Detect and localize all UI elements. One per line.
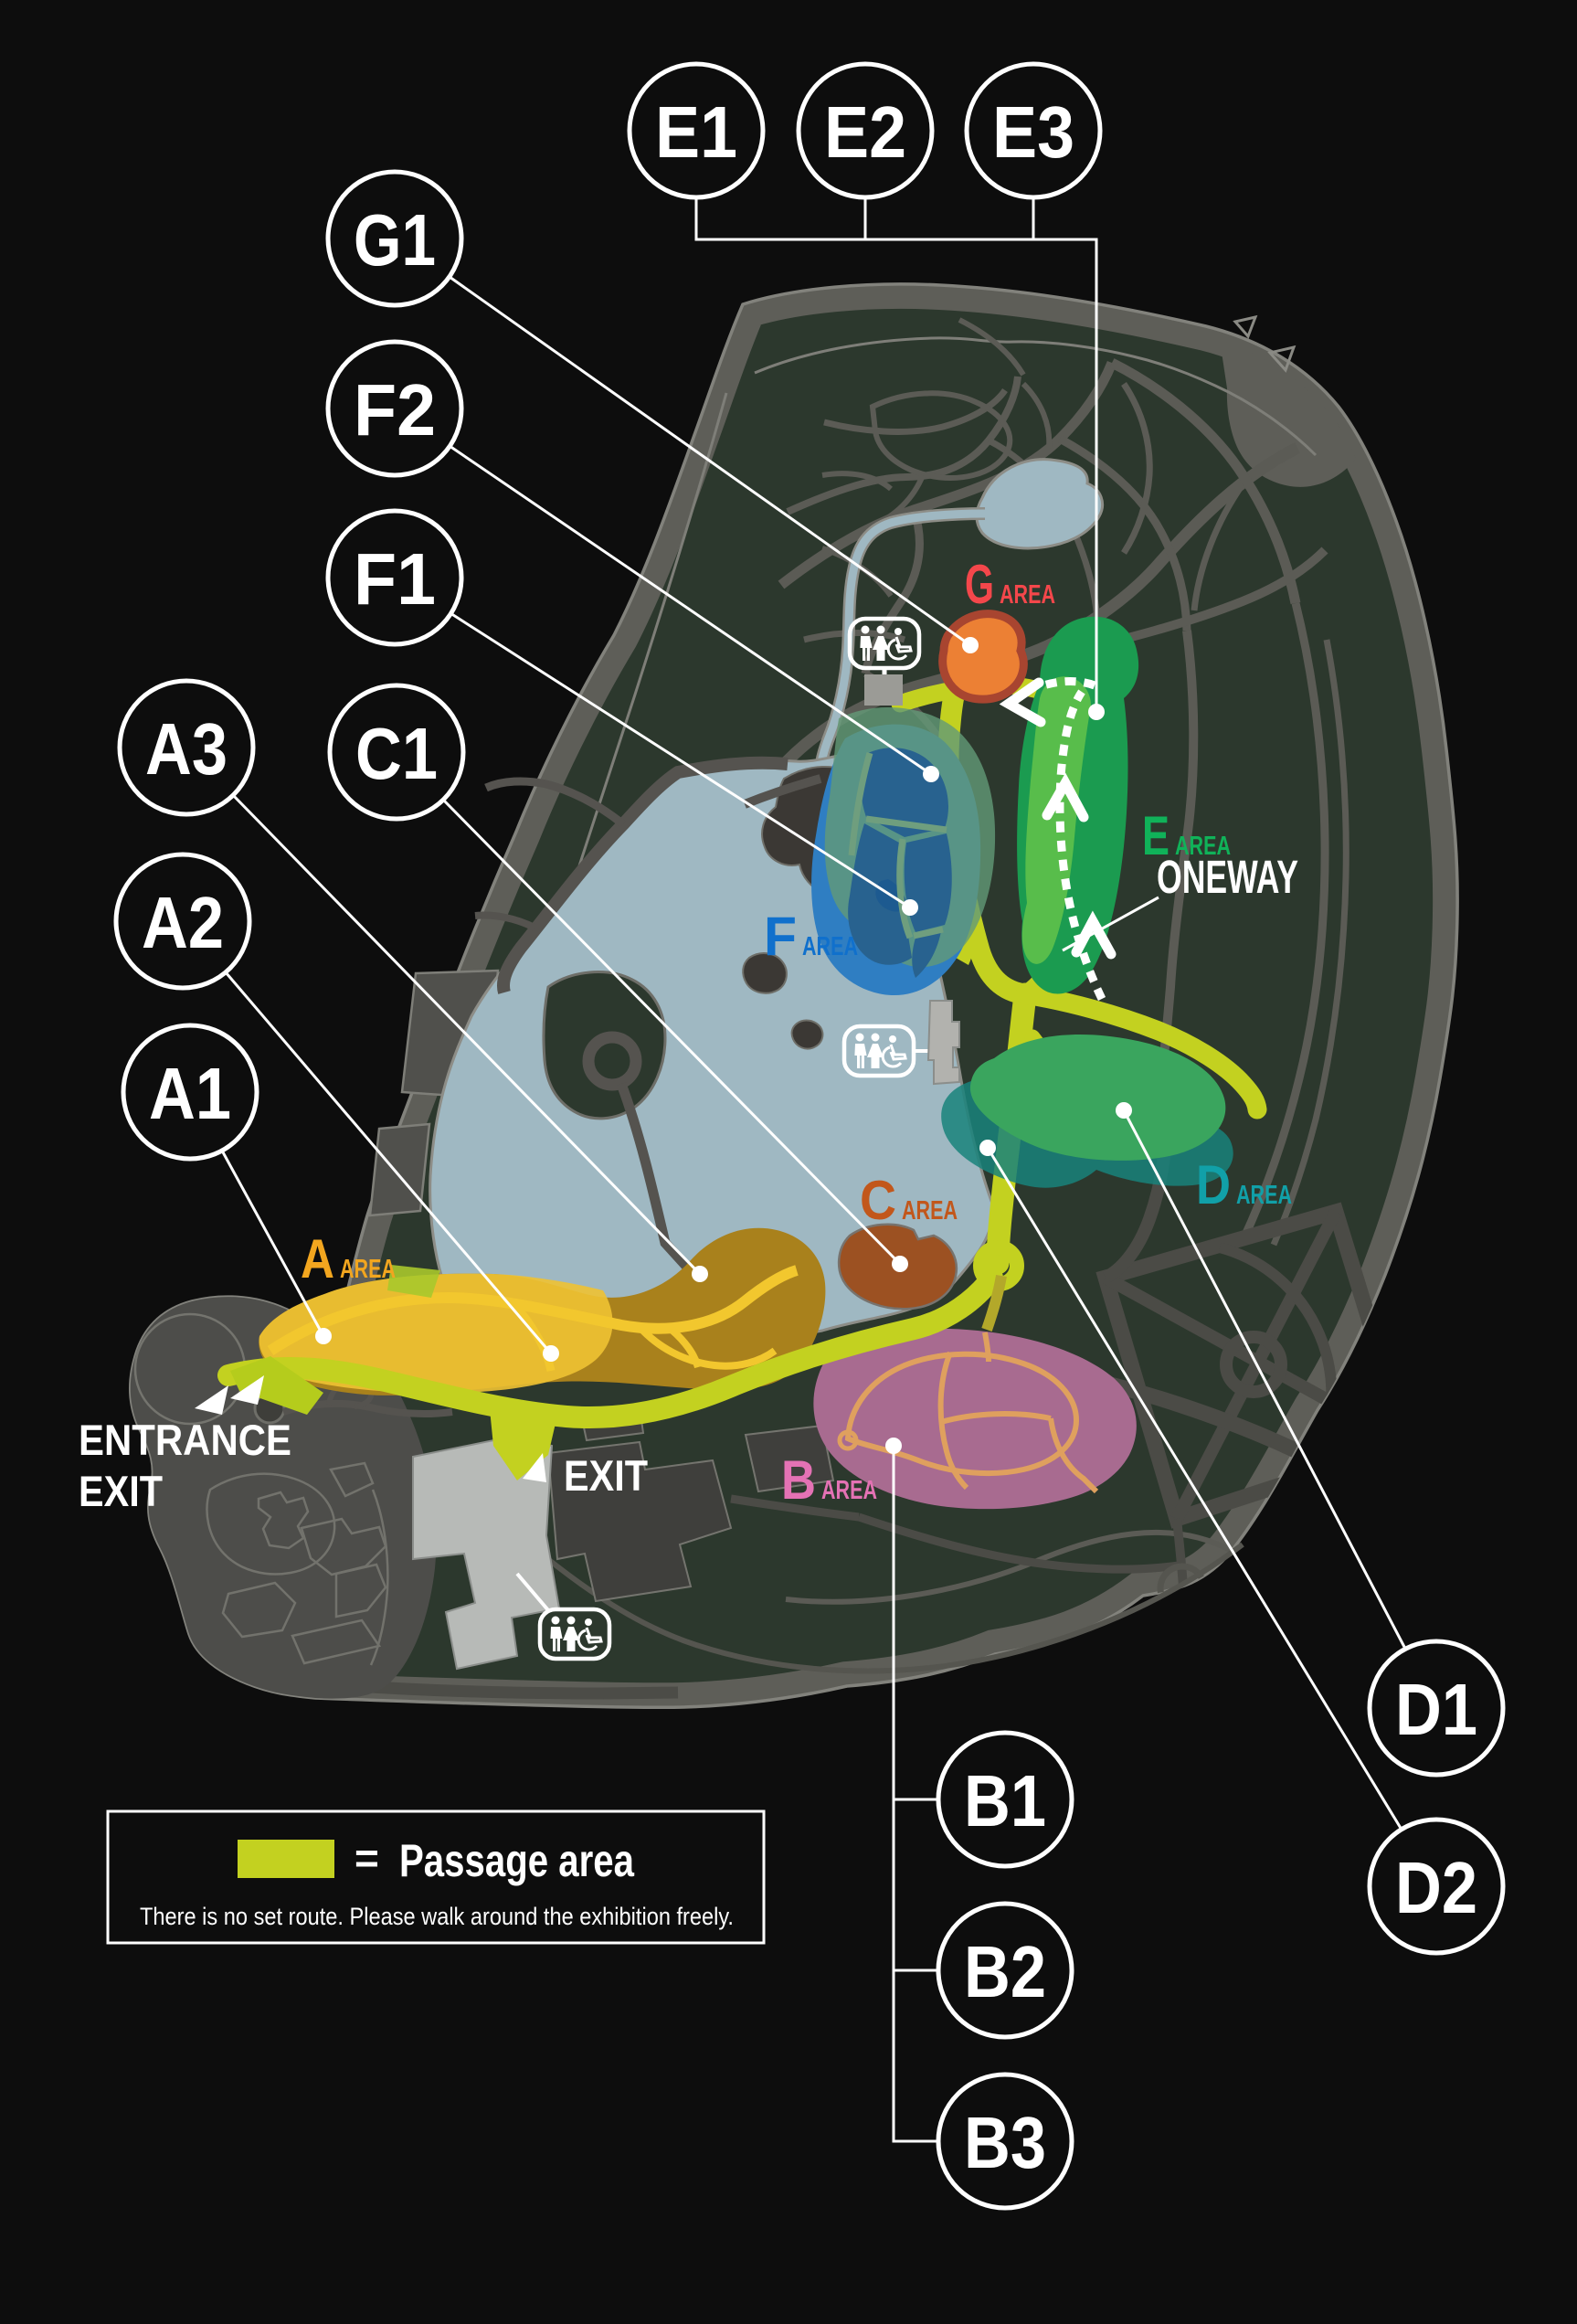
svg-text:ENTRANCE: ENTRANCE (79, 1416, 291, 1464)
svg-text:B1: B1 (964, 1760, 1046, 1841)
svg-text:D2: D2 (1395, 1847, 1477, 1928)
svg-text:EXIT: EXIT (564, 1451, 648, 1500)
svg-text:E1: E1 (655, 91, 737, 173)
svg-text:ONEWAY: ONEWAY (1157, 851, 1298, 903)
svg-text:AREA: AREA (902, 1196, 958, 1226)
svg-text:C1: C1 (355, 713, 438, 794)
svg-text:B: B (781, 1449, 816, 1511)
svg-text:G1: G1 (354, 199, 436, 281)
svg-text:E3: E3 (992, 91, 1074, 173)
svg-text:AREA: AREA (1000, 580, 1055, 610)
svg-text:AREA: AREA (1236, 1181, 1292, 1210)
svg-text:A2: A2 (142, 882, 224, 963)
svg-text:B3: B3 (964, 2102, 1046, 2183)
svg-text:F1: F1 (354, 538, 436, 620)
svg-text:B2: B2 (964, 1931, 1046, 2012)
svg-text:A1: A1 (149, 1053, 231, 1134)
svg-text:A3: A3 (145, 708, 228, 790)
svg-text:F: F (764, 906, 797, 967)
svg-text:EXIT: EXIT (79, 1467, 163, 1515)
svg-text:Passage area: Passage area (399, 1835, 635, 1886)
svg-text:D: D (1196, 1154, 1231, 1215)
svg-text:E2: E2 (824, 91, 906, 173)
svg-text:AREA: AREA (821, 1476, 877, 1505)
svg-text:G: G (965, 554, 994, 615)
svg-text:A: A (301, 1228, 334, 1289)
svg-text:AREA: AREA (340, 1255, 396, 1284)
svg-text:C: C (860, 1170, 896, 1231)
svg-text:AREA: AREA (802, 932, 858, 961)
svg-text:D1: D1 (1395, 1669, 1477, 1750)
svg-text:=: = (355, 1834, 379, 1882)
svg-text:F2: F2 (354, 369, 436, 451)
svg-text:There is no set route. Please: There is no set route. Please walk aroun… (140, 1903, 734, 1930)
